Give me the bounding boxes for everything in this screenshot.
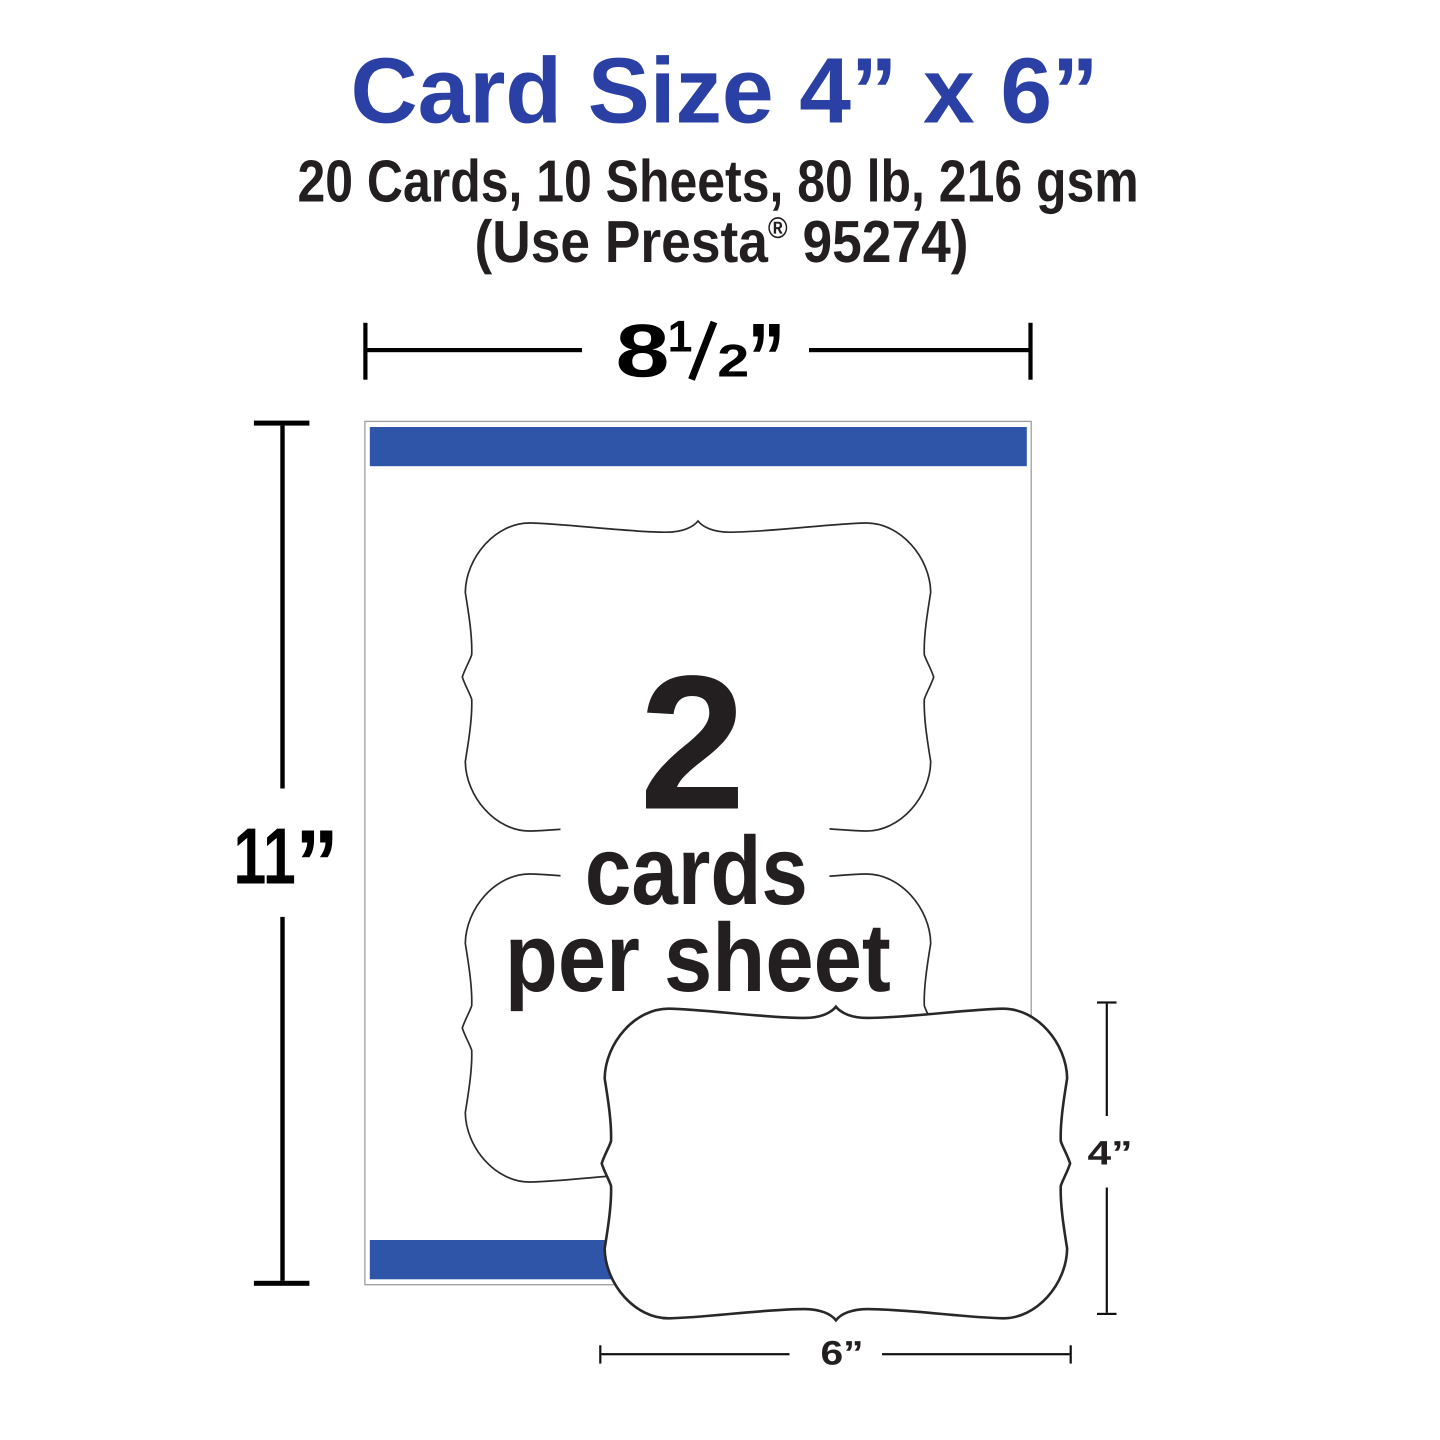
svg-text:”: ” — [295, 810, 339, 916]
svg-text:8: 8 — [616, 309, 670, 393]
svg-text:1: 1 — [668, 313, 693, 362]
svg-text:Card Size 4” x 6”: Card Size 4” x 6” — [351, 38, 1099, 142]
svg-text:4”: 4” — [1088, 1134, 1133, 1172]
svg-text:per sheet: per sheet — [505, 903, 891, 1012]
svg-text:20 Cards, 10 Sheets, 80 lb, 21: 20 Cards, 10 Sheets, 80 lb, 216 gsm — [298, 147, 1139, 214]
svg-text:11: 11 — [234, 812, 296, 901]
svg-text:6”: 6” — [820, 1335, 863, 1373]
svg-text:”: ” — [748, 303, 786, 413]
svg-text:(Use Presta® 95274): (Use Presta® 95274) — [474, 208, 968, 275]
svg-text:2: 2 — [717, 335, 749, 387]
